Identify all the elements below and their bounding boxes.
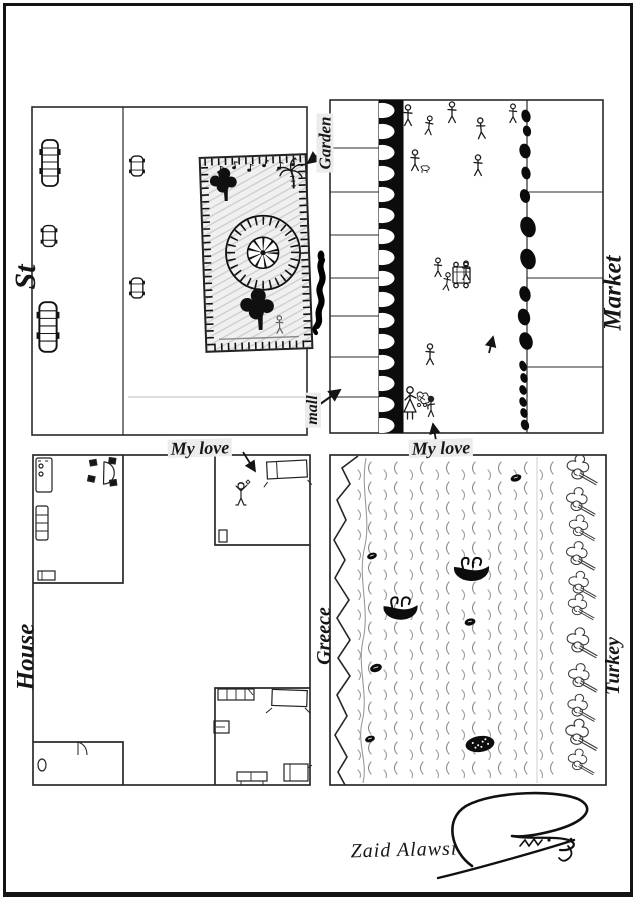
market-label: Market	[601, 256, 626, 331]
parked-car-scribble	[315, 251, 325, 334]
room-top-right-walls	[215, 455, 310, 545]
beloved-person-icon	[236, 480, 250, 505]
wave-texture	[352, 460, 554, 778]
my-love-label-market: My love	[409, 438, 474, 458]
shore-tree-icon	[568, 594, 594, 620]
bed-icon	[284, 764, 312, 781]
pedestrian-icon	[474, 155, 482, 176]
pedestrian-icon	[425, 116, 434, 135]
pedestrian-icon	[426, 344, 434, 365]
bench-icon	[237, 772, 267, 785]
artist-signature-name: Zaid Alawsi	[350, 839, 457, 862]
my-love-label-house: My love	[168, 438, 233, 458]
car-icon	[130, 278, 144, 298]
turkey-label: Turkey	[603, 637, 623, 695]
greece-label: Greece	[314, 607, 334, 665]
mother-icon	[404, 387, 416, 419]
shore-tree-icon	[569, 571, 596, 598]
market-stalls-right	[527, 192, 603, 367]
sea-block	[330, 455, 606, 785]
market-pedestrians	[404, 102, 517, 419]
pine-tree-row	[379, 100, 403, 433]
shore-tree-icon	[567, 628, 597, 658]
mall-label: mall	[305, 392, 321, 427]
shelf-icon	[36, 506, 48, 540]
shore-tree-icon	[568, 694, 595, 721]
cabinet-icon	[36, 458, 52, 492]
scanned-drawing-page: St Garden mall Market My love My love Ho…	[0, 0, 636, 900]
child-icon	[428, 396, 435, 416]
pedestrian-icon	[404, 105, 412, 126]
bus-icon	[38, 302, 59, 352]
bed-icon	[266, 689, 310, 713]
street-label: St	[11, 264, 41, 289]
garden-park	[200, 154, 313, 352]
bus-icon	[41, 140, 60, 186]
car-icon	[42, 226, 57, 247]
shore-tree-icon	[568, 749, 594, 775]
shore-tree-icon	[569, 664, 597, 692]
door-swing-icon	[78, 742, 87, 755]
vendor-cart-icon	[453, 262, 470, 287]
bed-icon	[263, 460, 312, 487]
pedestrian-icon	[443, 272, 452, 290]
table-and-chairs-icon	[88, 458, 117, 486]
wardrobe-icon	[218, 689, 254, 700]
door-icon	[219, 530, 227, 542]
pedestrian-icon	[476, 118, 486, 139]
walkway-arrow	[489, 337, 493, 353]
room-bottom-right-walls	[215, 688, 310, 785]
pedestrian-icon	[448, 102, 456, 123]
house-block	[33, 455, 310, 785]
pedestrian-icon	[509, 104, 516, 123]
car-icon	[130, 156, 144, 176]
street-vehicles	[38, 140, 144, 352]
shore-tree-icon	[567, 542, 595, 570]
house-label: House	[14, 624, 39, 691]
rug-icon	[38, 759, 46, 771]
turkey-coast-trees	[566, 455, 597, 775]
step-icon	[38, 571, 55, 580]
house-furniture	[36, 458, 312, 785]
dog-icon	[421, 166, 429, 173]
shore-tree-icon	[569, 515, 595, 541]
room-top-left-walls	[33, 455, 123, 583]
pedestrian-icon	[434, 258, 441, 277]
signature-flourish	[438, 793, 587, 878]
shore-tree-icon	[567, 488, 595, 516]
garden-label: Garden	[317, 114, 334, 173]
shore-tree-icon	[567, 455, 597, 485]
pedestrian-icon	[411, 150, 419, 171]
shore-tree-icon	[566, 719, 597, 750]
market-stalls-left	[330, 148, 379, 397]
